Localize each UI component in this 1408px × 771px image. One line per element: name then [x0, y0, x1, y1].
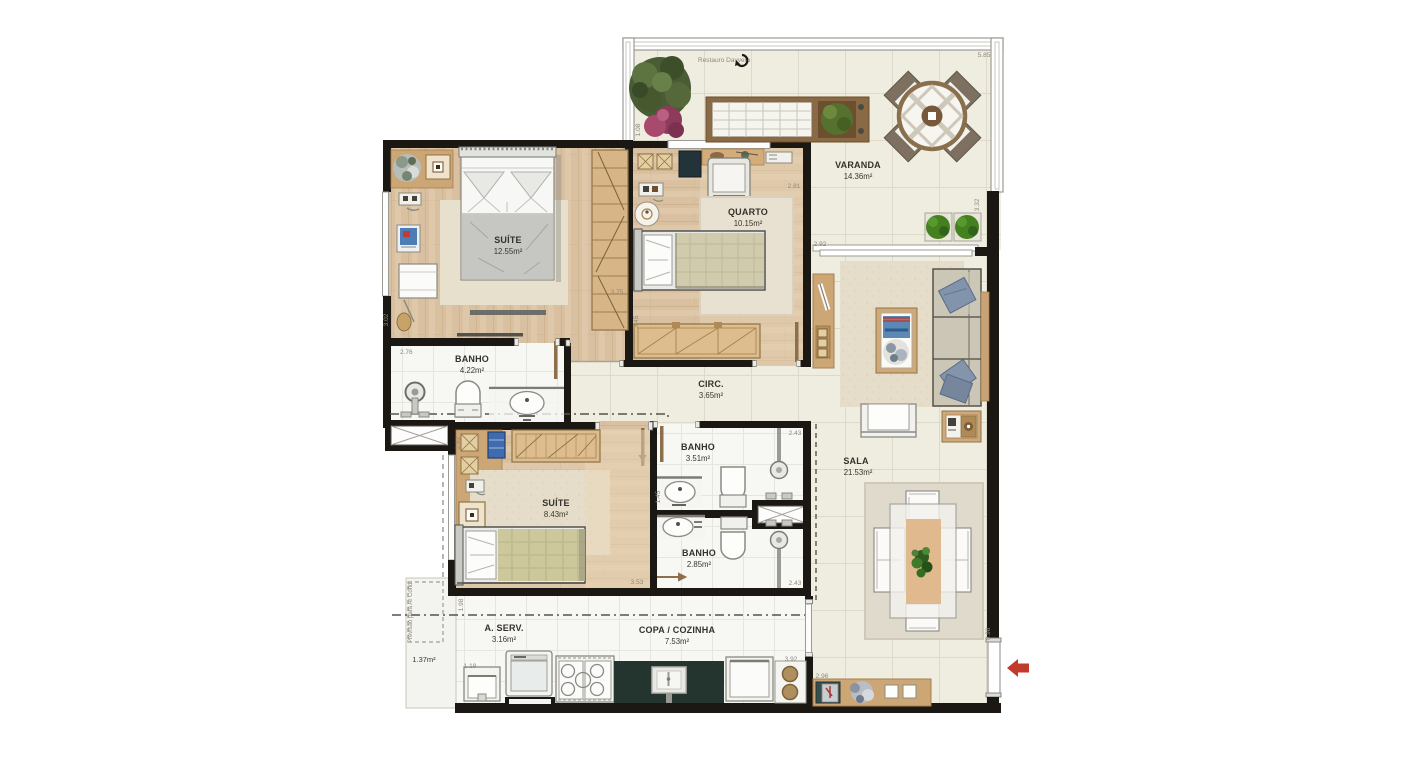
svg-text:Previsão para Ar Cond.: Previsão para Ar Cond.: [408, 581, 414, 643]
svg-text:Restauro Davvero: Restauro Davvero: [698, 57, 751, 64]
svg-text:COPA / COZINHA: COPA / COZINHA: [639, 625, 716, 635]
svg-text:2.92: 2.92: [814, 241, 827, 248]
svg-text:12.55m²: 12.55m²: [494, 247, 523, 256]
svg-text:A. SERV.: A. SERV.: [484, 623, 523, 633]
svg-text:8.43m²: 8.43m²: [544, 510, 569, 519]
svg-text:2.82: 2.82: [455, 436, 462, 449]
svg-text:2.43: 2.43: [789, 430, 802, 437]
svg-text:3.51m²: 3.51m²: [686, 454, 711, 463]
svg-text:3.53: 3.53: [631, 579, 644, 586]
svg-text:1.45: 1.45: [655, 490, 662, 503]
svg-text:4.22m²: 4.22m²: [460, 366, 485, 375]
svg-text:3.75: 3.75: [611, 289, 624, 296]
svg-text:2.96: 2.96: [816, 673, 829, 680]
svg-text:5.85: 5.85: [978, 52, 991, 59]
svg-text:3.65m²: 3.65m²: [699, 391, 724, 400]
svg-text:SUÍTE: SUÍTE: [494, 235, 522, 245]
svg-text:BANHO: BANHO: [682, 548, 716, 558]
svg-text:1.98: 1.98: [458, 598, 465, 611]
svg-text:3.16m²: 3.16m²: [492, 635, 517, 644]
svg-text:2.43: 2.43: [789, 580, 802, 587]
svg-text:VARANDA: VARANDA: [835, 160, 881, 170]
svg-text:QUARTO: QUARTO: [728, 207, 768, 217]
svg-text:10.15m²: 10.15m²: [734, 219, 763, 228]
svg-text:14.36m²: 14.36m²: [844, 172, 873, 181]
svg-text:3.02: 3.02: [383, 313, 390, 326]
svg-text:3.32: 3.32: [974, 198, 981, 211]
svg-text:3.45: 3.45: [633, 315, 640, 328]
svg-text:BANHO: BANHO: [455, 354, 489, 364]
svg-text:1.18: 1.18: [464, 663, 477, 670]
svg-text:BANHO: BANHO: [681, 442, 715, 452]
svg-text:1.08: 1.08: [635, 123, 642, 136]
svg-text:1.37m²: 1.37m²: [412, 655, 436, 664]
svg-text:SALA: SALA: [843, 456, 869, 466]
svg-text:2.85m²: 2.85m²: [687, 560, 712, 569]
svg-text:3.92: 3.92: [785, 656, 798, 663]
svg-text:2.81: 2.81: [788, 183, 801, 190]
svg-text:0.98: 0.98: [985, 627, 992, 640]
svg-text:21.53m²: 21.53m²: [844, 468, 873, 477]
svg-text:2.76: 2.76: [400, 349, 413, 356]
svg-text:CIRC.: CIRC.: [698, 379, 724, 389]
svg-text:7.53m²: 7.53m²: [665, 637, 690, 646]
svg-text:SUÍTE: SUÍTE: [542, 498, 570, 508]
